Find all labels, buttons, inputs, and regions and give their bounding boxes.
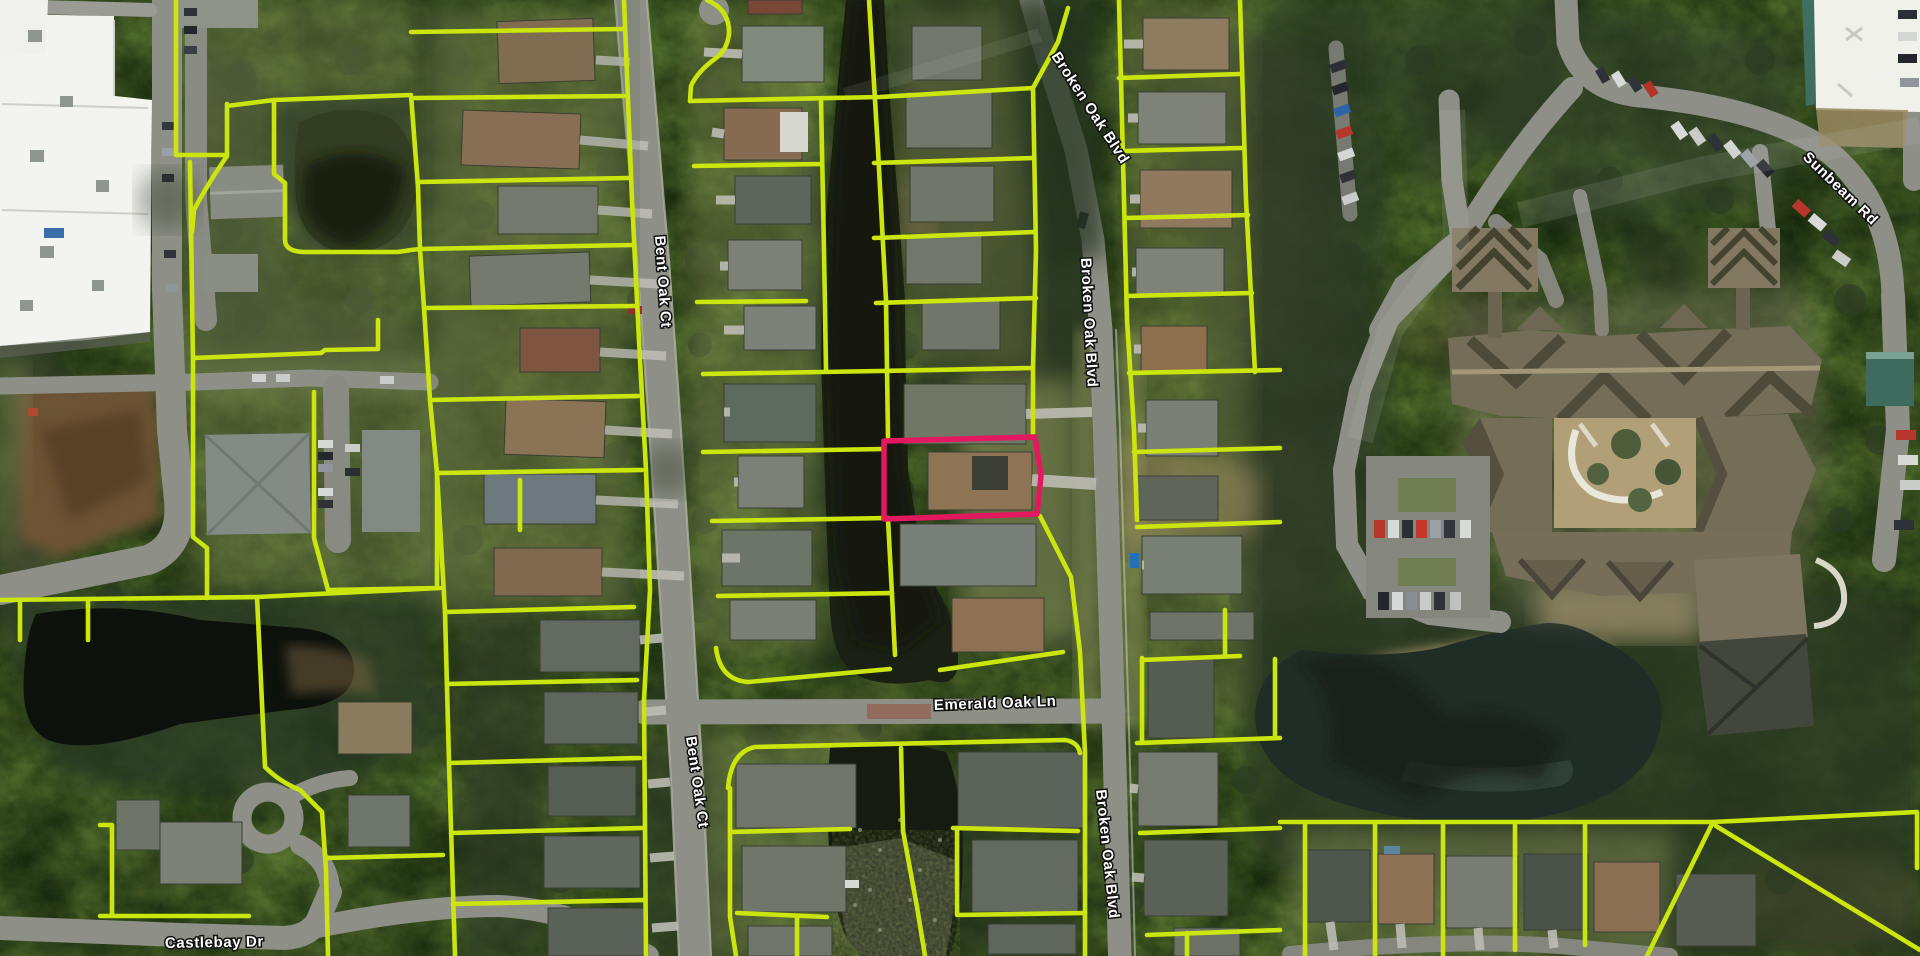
svg-text:Castlebay Dr: Castlebay Dr (165, 933, 264, 952)
